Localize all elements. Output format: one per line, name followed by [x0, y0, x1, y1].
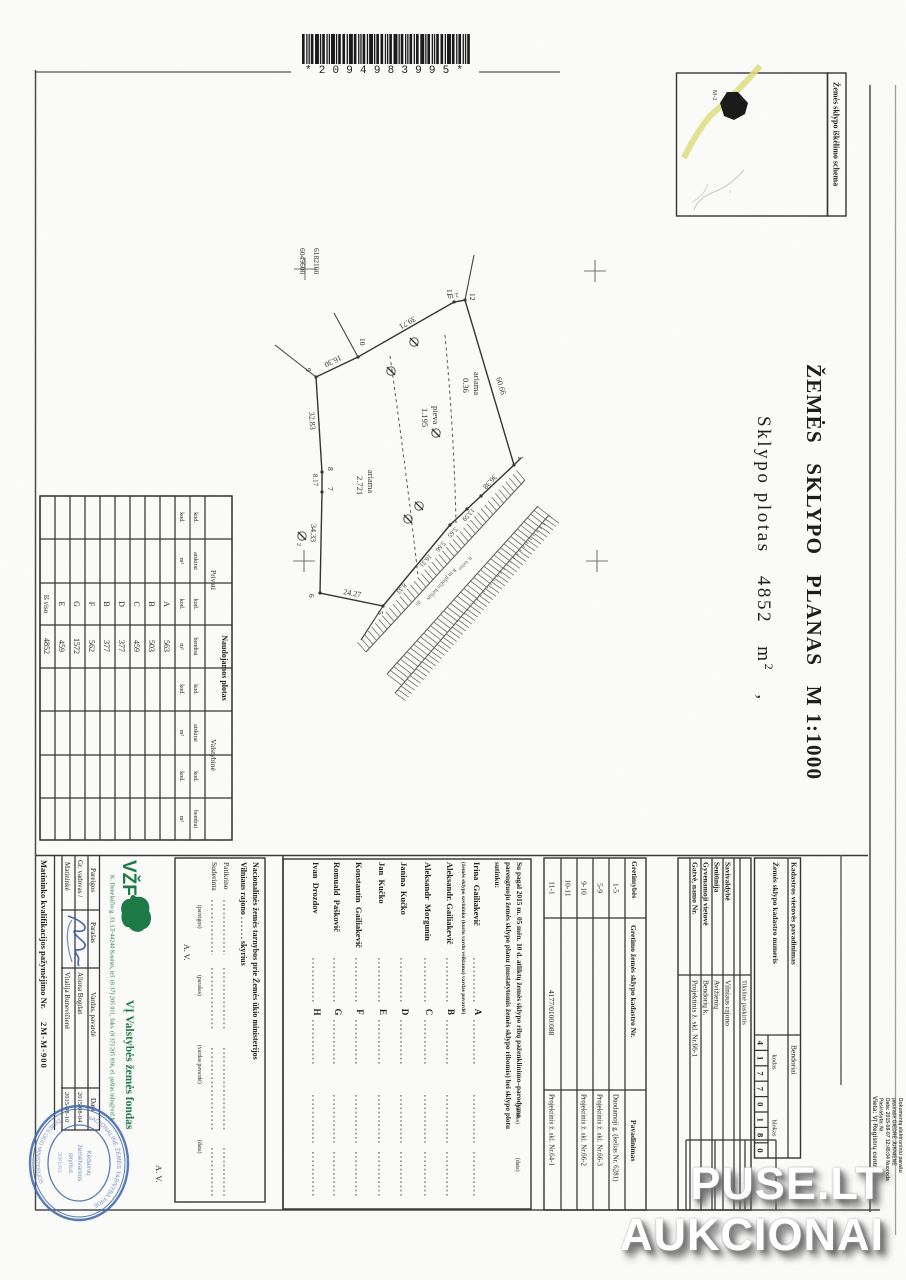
svg-text:* 2 0 9 4 9 8 3 9 9 5 *: * 2 0 9 4 9 8 3 9 9 5 * — [305, 65, 463, 77]
